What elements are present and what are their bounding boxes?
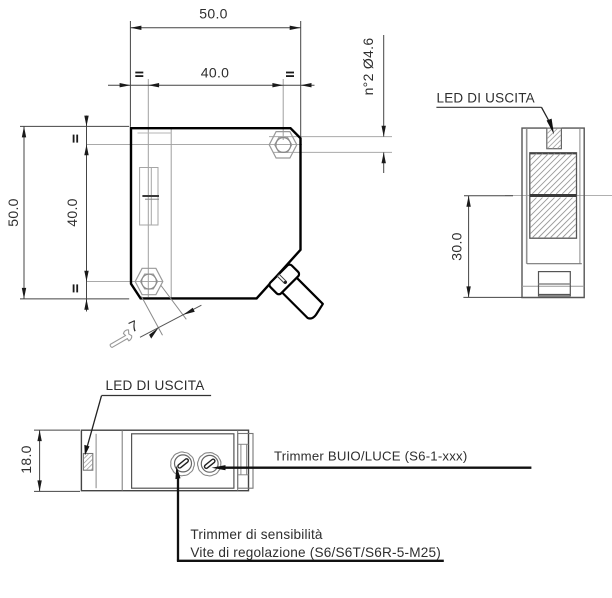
svg-text:LED DI USCITA: LED DI USCITA [106, 378, 206, 393]
svg-text:40.0: 40.0 [64, 198, 80, 226]
svg-text:LED DI USCITA: LED DI USCITA [437, 91, 535, 106]
svg-text:Trimmer BUIO/LUCE (S6-1-xxx): Trimmer BUIO/LUCE (S6-1-xxx) [274, 449, 467, 464]
svg-text:30.0: 30.0 [449, 232, 465, 260]
svg-text:Trimmer di sensibilità: Trimmer di sensibilità [190, 527, 323, 542]
svg-text:n°2 Ø4.6: n°2 Ø4.6 [360, 38, 376, 96]
svg-text:50.0: 50.0 [5, 198, 21, 226]
svg-text:50.0: 50.0 [199, 6, 227, 22]
svg-text:40.0: 40.0 [201, 65, 229, 81]
svg-text:18.0: 18.0 [18, 445, 34, 473]
svg-text:Vite di regolazione (S6/S6T/S6: Vite di regolazione (S6/S6T/S6R-5-M25) [190, 545, 441, 560]
